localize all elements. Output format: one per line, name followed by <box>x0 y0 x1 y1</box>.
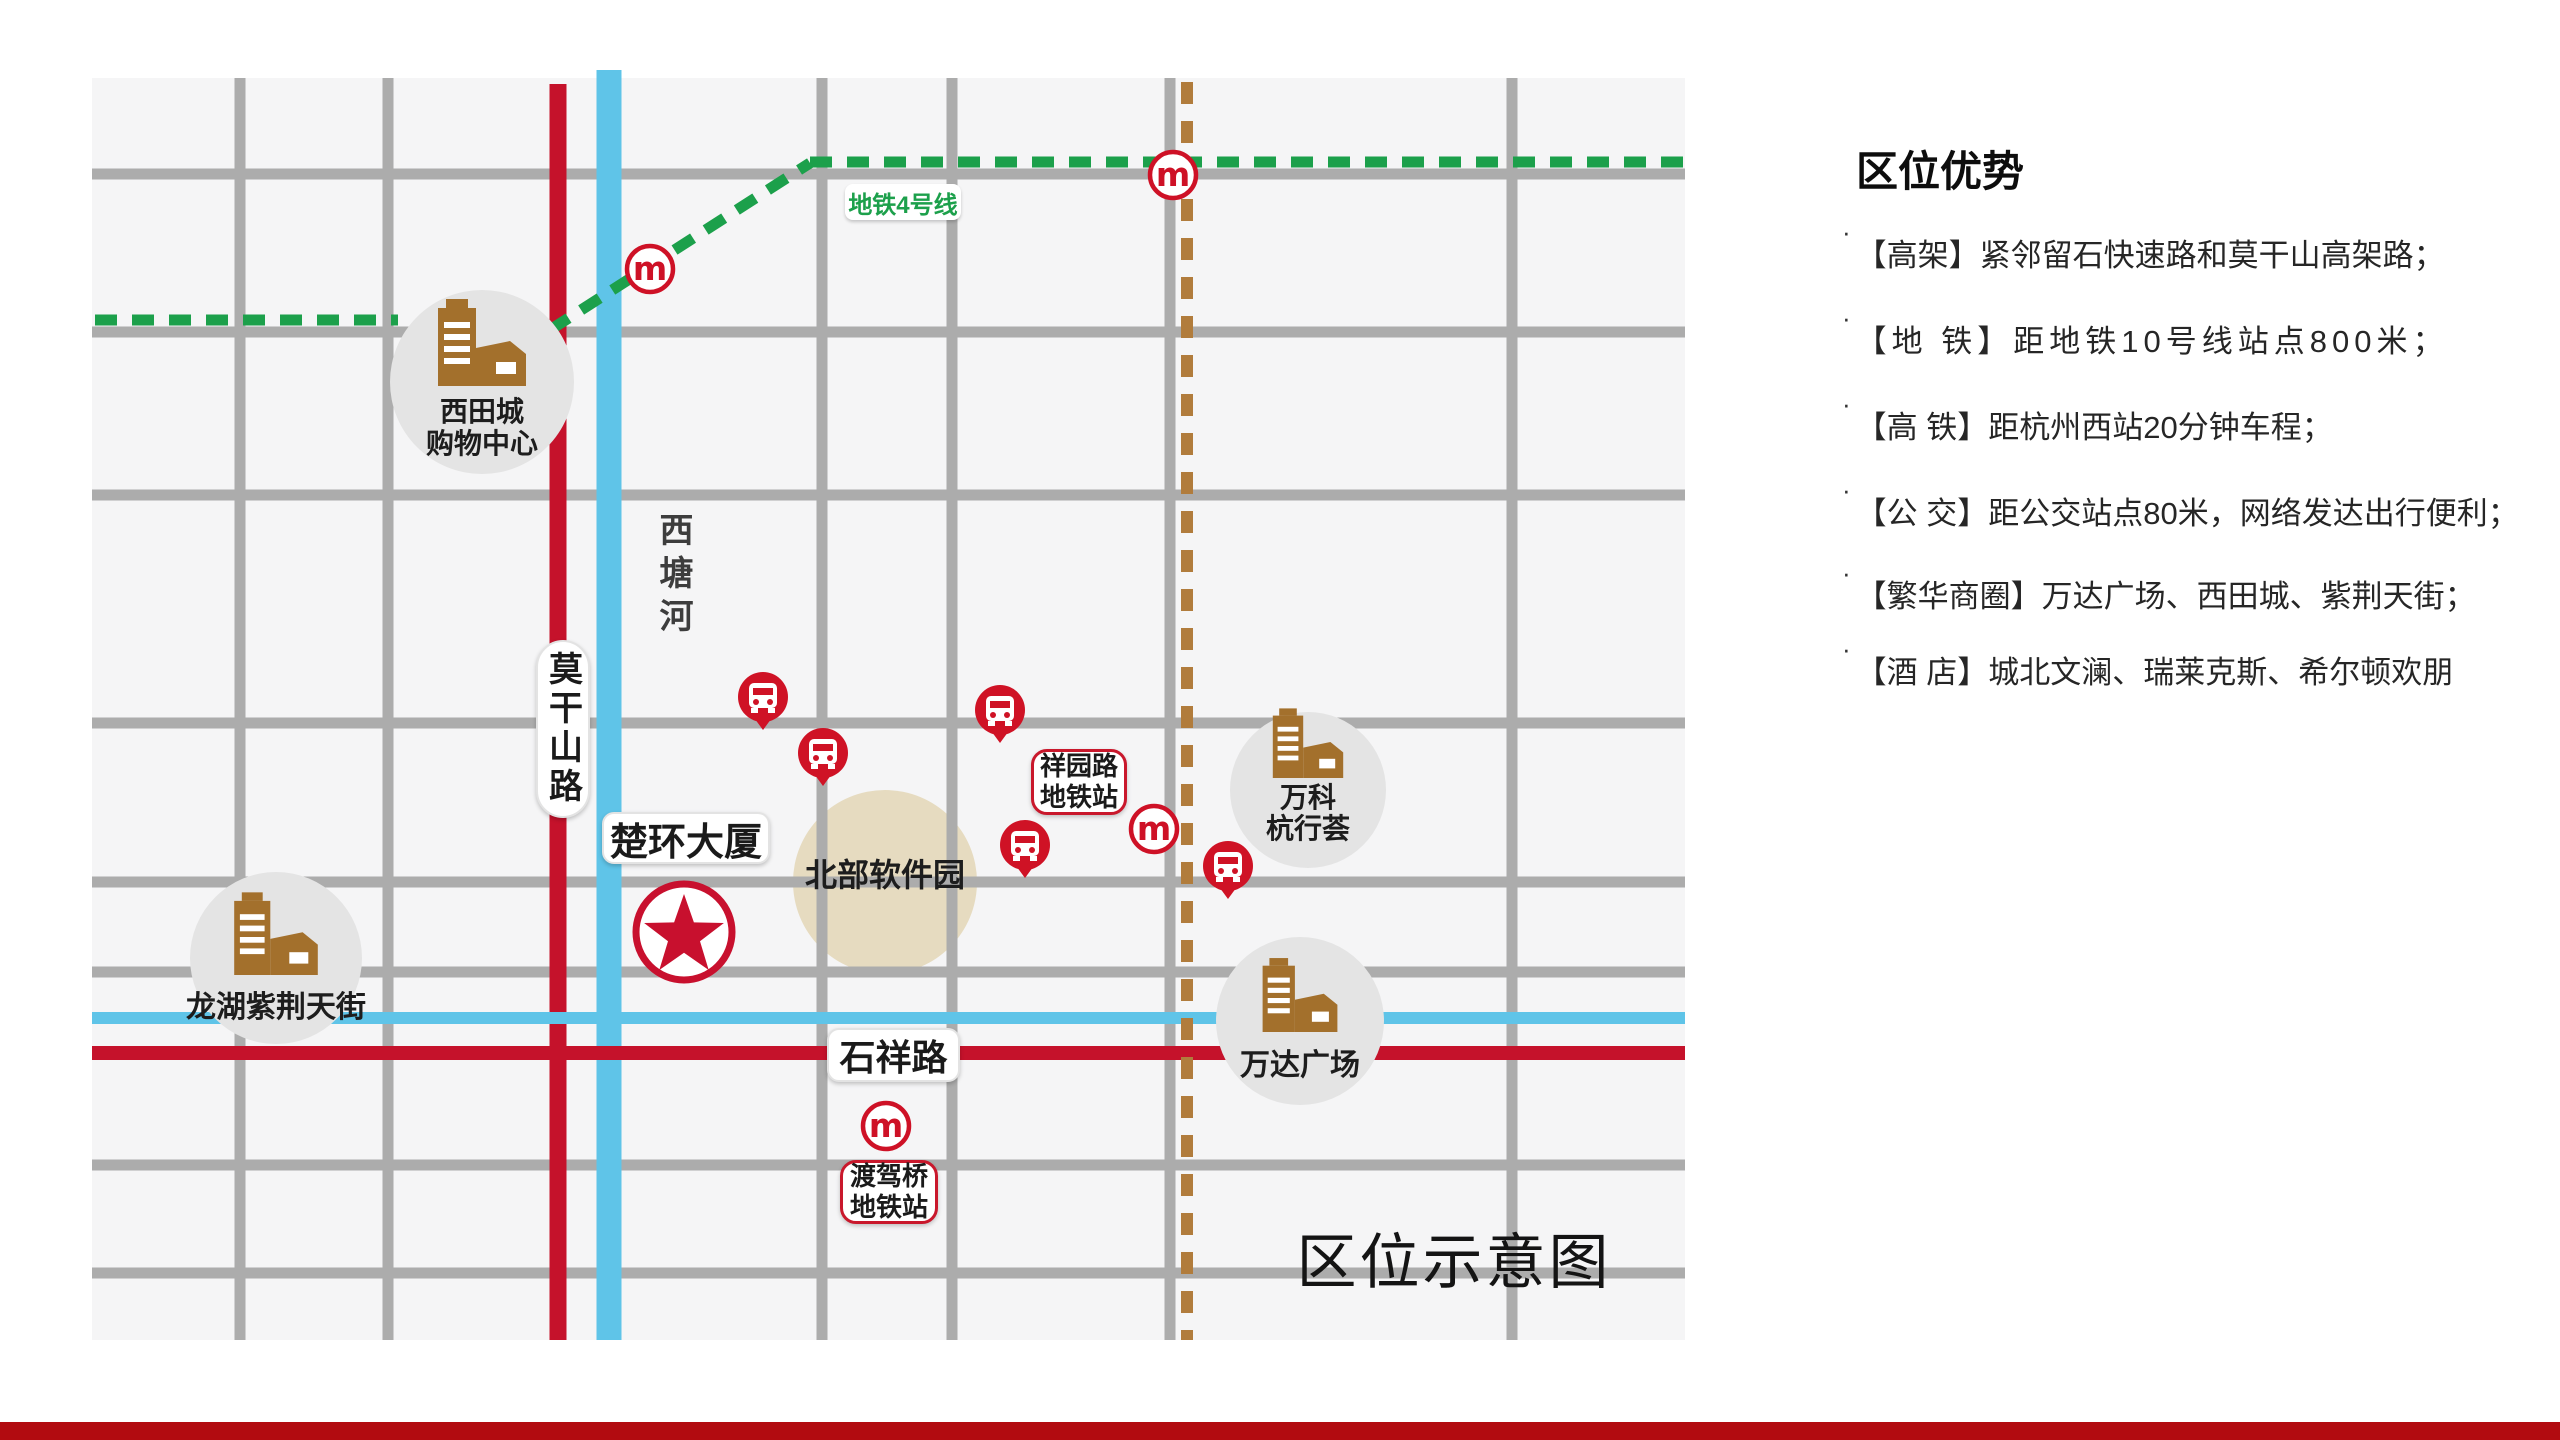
metro-station-icon-xiangyuan: m <box>1131 806 1177 852</box>
advantage-text: 【地 铁】距地铁10号线站点800米； <box>1856 316 2449 361</box>
station-label-dujiaqiao: 渡驾桥 地铁站 <box>840 1160 938 1224</box>
bullet-dot: · <box>1842 558 1851 589</box>
advantage-text: 【高 铁】距杭州西站20分钟车程； <box>1856 402 2333 447</box>
road-label-shixiang: 石祥路 <box>827 1028 960 1082</box>
landmark-label-line2: 杭行荟 <box>1198 813 1418 844</box>
station-label-line2: 地铁站 <box>850 1192 928 1223</box>
advantage-text: 【繁华商圈】万达广场、西田城、紫荆天街； <box>1856 571 2476 616</box>
advantage-text: 【酒 店】城北文澜、瑞莱克斯、希尔顿欢朋 <box>1856 647 2454 692</box>
landmark-label-wanda: 万达广场 <box>1190 1040 1410 1084</box>
metro-logo: m <box>633 249 667 288</box>
bullet-dot: · <box>1842 217 1851 248</box>
advantage-item: · 【公 交】距公交站点80米，网络发达出行便利； <box>1842 488 2519 533</box>
advantage-item: · 【地 铁】距地铁10号线站点800米； <box>1842 316 2449 361</box>
landmark-label-line1: 西田城 <box>372 396 592 428</box>
river-label-xitang: 西塘河 <box>649 512 698 641</box>
advantage-text: 【高架】紧邻留石快速路和莫干山高架路； <box>1856 230 2445 275</box>
advantage-item: · 【高架】紧邻留石快速路和莫干山高架路； <box>1842 230 2445 275</box>
project-star-marker <box>636 884 732 980</box>
landmark-label-vanke: 万科 杭行荟 <box>1198 782 1418 844</box>
metro-station-icon-top: m <box>1150 152 1196 198</box>
landmark-label-xitiancheng: 西田城 购物中心 <box>372 396 592 460</box>
bullet-dot: · <box>1842 303 1851 334</box>
bullet-dot: · <box>1842 634 1851 665</box>
advantage-item: · 【繁华商圈】万达广场、西田城、紫荆天街； <box>1842 571 2476 616</box>
road-label-mogangshan: 莫干山路 <box>536 640 590 818</box>
bullet-dot: · <box>1842 389 1851 420</box>
location-map: m m m m <box>92 70 1685 1340</box>
landmark-label-line2: 购物中心 <box>372 428 592 460</box>
station-label-xiangyuan: 祥园路 地铁站 <box>1031 749 1127 815</box>
metro-logo: m <box>869 1106 903 1145</box>
metro-line-4-label: 地铁4号线 <box>845 184 961 220</box>
bullet-dot: · <box>1842 475 1851 506</box>
panel-title: 区位优势 <box>1856 138 2024 199</box>
landmark-label-line1: 万科 <box>1198 782 1418 813</box>
station-label-line2: 地铁站 <box>1040 782 1118 813</box>
landmark-label-longhu: 龙湖紫荆天街 <box>166 982 386 1026</box>
map-caption: 区位示意图 <box>1268 1214 1640 1301</box>
metro-logo: m <box>1137 809 1171 848</box>
project-label: 楚环大厦 <box>602 812 770 864</box>
landmark-label-software-park: 北部软件园 <box>775 850 995 896</box>
metro-station-icon-dujiaqiao: m <box>863 1103 909 1149</box>
advantage-item: · 【酒 店】城北文澜、瑞莱克斯、希尔顿欢朋 <box>1842 647 2453 692</box>
station-label-line1: 渡驾桥 <box>850 1161 928 1192</box>
metro-station-icon-bend: m <box>627 246 673 292</box>
advantage-item: · 【高 铁】距杭州西站20分钟车程； <box>1842 402 2333 447</box>
advantage-text: 【公 交】距公交站点80米，网络发达出行便利； <box>1856 488 2519 533</box>
metro-logo: m <box>1156 155 1190 194</box>
bottom-accent-bar <box>0 1422 2560 1440</box>
station-label-line1: 祥园路 <box>1040 751 1118 782</box>
